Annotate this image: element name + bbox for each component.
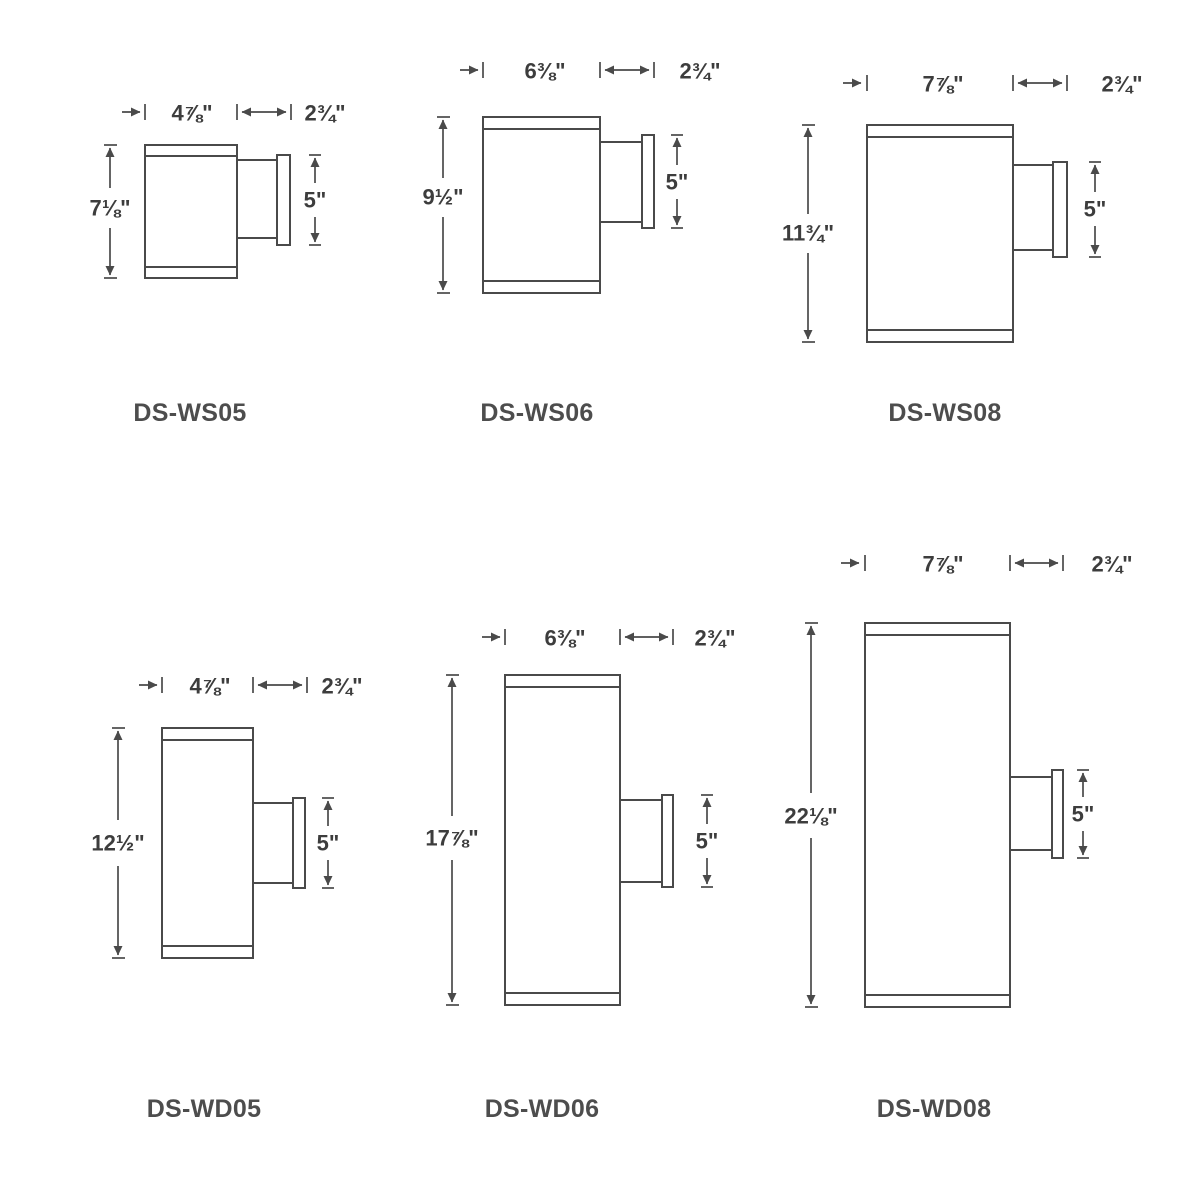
depth-dim-label: 2¾" (304, 101, 345, 126)
height-dim-label: 17⅞" (425, 826, 478, 851)
height-dim-label: 12½" (91, 831, 144, 856)
width-dimension: 6⅜" 2¾" (482, 626, 736, 651)
fixture-arm (253, 803, 293, 883)
depth-dim-label: 2¾" (694, 626, 735, 651)
fixture-backplate (1052, 770, 1063, 858)
height-dim-label: 7⅛" (89, 196, 130, 221)
diagram-ds-wd05: 4⅞" 2¾" 12½" 5" DS-WD05 (91, 674, 362, 1124)
height-dimension: 7⅛" (89, 145, 130, 278)
backplate-dimension: 5" (666, 135, 689, 228)
height-dimension: 9½" (422, 117, 463, 293)
backplate-dim-label: 5" (666, 170, 689, 195)
depth-dim-label: 2¾" (1101, 72, 1142, 97)
backplate-dimension: 5" (317, 798, 340, 888)
backplate-dimension: 5" (696, 795, 719, 887)
diagram-ds-wd08: 7⅞" 2¾" 22⅛" 5" DS-WD08 (784, 552, 1132, 1124)
backplate-dim-label: 5" (1072, 802, 1095, 827)
height-dimension: 22⅛" (784, 623, 837, 1007)
model-label: DS-WS06 (480, 399, 593, 427)
fixture-backplate (642, 135, 654, 228)
backplate-dimension: 5" (1072, 770, 1095, 858)
height-dimension: 17⅞" (425, 675, 478, 1005)
backplate-dim-label: 5" (696, 829, 719, 854)
height-dimension: 12½" (91, 728, 144, 958)
diagram-ds-ws05: 4⅞" 2¾" 7⅛" 5" DS-WS05 (89, 101, 345, 428)
backplate-dimension: 5" (1084, 162, 1107, 257)
width-dimension: 7⅞" 2¾" (843, 72, 1143, 97)
fixture-arm (600, 142, 642, 222)
width-dim-label: 4⅞" (189, 674, 230, 699)
width-dimension: 7⅞" 2¾" (841, 552, 1133, 577)
width-dimension: 4⅞" 2¾" (122, 101, 346, 126)
fixture-backplate (277, 155, 290, 245)
width-dim-label: 4⅞" (171, 101, 212, 126)
spec-sheet: 4⅞" 2¾" 7⅛" 5" DS-WS05 (0, 0, 1200, 1200)
dimension-drawing: 4⅞" 2¾" 7⅛" 5" DS-WS05 (0, 0, 1200, 1200)
fixture-body (483, 117, 600, 293)
width-dimension: 4⅞" 2¾" (139, 674, 363, 699)
backplate-dim-label: 5" (304, 188, 327, 213)
width-dim-label: 6⅜" (524, 59, 565, 84)
fixture-body (867, 125, 1013, 342)
height-dim-label: 9½" (422, 185, 463, 210)
model-label: DS-WD05 (147, 1095, 262, 1123)
model-label: DS-WD08 (877, 1095, 992, 1123)
width-dim-label: 7⅞" (922, 552, 963, 577)
fixture-body (865, 623, 1010, 1007)
depth-dim-label: 2¾" (1091, 552, 1132, 577)
fixture-body (145, 145, 237, 278)
diagram-ds-ws08: 7⅞" 2¾" 11¾" 5" DS-WS08 (782, 72, 1143, 428)
height-dim-label: 22⅛" (784, 804, 837, 829)
diagram-ds-ws06: 6⅜" 2¾" 9½" 5" DS-WS06 (422, 59, 720, 428)
model-label: DS-WS05 (133, 399, 246, 427)
depth-dim-label: 2¾" (679, 59, 720, 84)
model-label: DS-WD06 (485, 1095, 600, 1123)
fixture-arm (620, 800, 662, 882)
diagram-ds-wd06: 6⅜" 2¾" 17⅞" 5" DS-WD06 (425, 626, 735, 1124)
fixture-arm (237, 160, 277, 238)
fixture-body (162, 728, 253, 958)
width-dim-label: 7⅞" (922, 72, 963, 97)
model-label: DS-WS08 (888, 399, 1001, 427)
width-dim-label: 6⅜" (544, 626, 585, 651)
fixture-arm (1010, 777, 1052, 850)
fixture-arm (1013, 165, 1053, 250)
backplate-dim-label: 5" (1084, 197, 1107, 222)
height-dim-label: 11¾" (782, 221, 834, 246)
backplate-dimension: 5" (304, 155, 327, 245)
fixture-body (505, 675, 620, 1005)
fixture-backplate (662, 795, 673, 887)
depth-dim-label: 2¾" (321, 674, 362, 699)
backplate-dim-label: 5" (317, 831, 340, 856)
width-dimension: 6⅜" 2¾" (460, 59, 721, 84)
height-dimension: 11¾" (782, 125, 834, 342)
fixture-backplate (293, 798, 305, 888)
fixture-backplate (1053, 162, 1067, 257)
